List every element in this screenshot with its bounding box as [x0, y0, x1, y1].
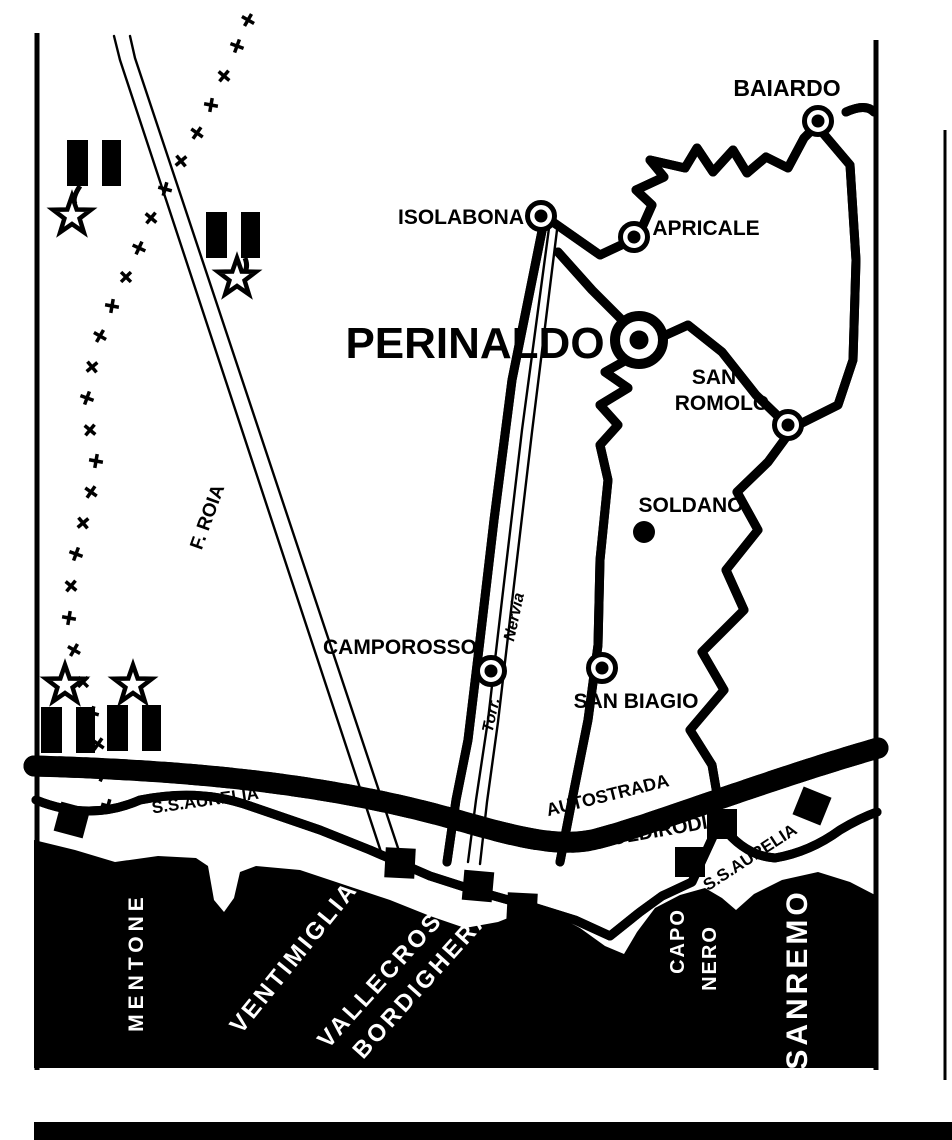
vallecrosia-square-marker	[462, 870, 495, 903]
map-canvas: BAIARDO ISOLABONA APRICALE PERINALDO SAN…	[0, 0, 952, 1140]
sanremo-label: SANREMO	[781, 888, 814, 1069]
coast-square-marker	[675, 847, 705, 877]
flag-icon	[67, 140, 121, 186]
perinaldo-marker	[615, 316, 663, 364]
san-biagio-marker	[589, 655, 616, 682]
mentone-label: MENTONE	[125, 892, 148, 1032]
soldano-marker	[633, 521, 655, 543]
san-romolo-label-line1: SAN	[692, 366, 736, 389]
camporosso-label: CAMPOROSSO	[323, 636, 477, 659]
ventimiglia-square-marker	[384, 847, 416, 879]
capo-nero-label-line1: CAPO	[667, 908, 689, 974]
apricale-marker	[621, 224, 648, 251]
bottom-bar	[34, 1122, 952, 1140]
soldano-label: SOLDANO	[639, 494, 744, 517]
isolabona-label: ISOLABONA	[398, 206, 524, 229]
map-page: BAIARDO ISOLABONA APRICALE PERINALDO SAN…	[0, 0, 952, 1140]
capo-nero-label-line2: NERO	[699, 925, 721, 991]
camporosso-marker	[478, 658, 505, 685]
flag-icon	[107, 705, 161, 751]
baiardo-label: BAIARDO	[733, 75, 840, 101]
coldirodi-square-marker	[707, 809, 737, 839]
perinaldo-label: PERINALDO	[345, 319, 604, 368]
isolabona-marker	[528, 203, 555, 230]
baiardo-marker	[805, 108, 832, 135]
bordighera-square-marker	[506, 892, 538, 924]
san-biagio-label: SAN BIAGIO	[574, 690, 699, 713]
san-romolo-marker	[775, 412, 802, 439]
san-romolo-label-line2: ROMOLO	[675, 392, 770, 415]
flag-icon	[41, 707, 95, 753]
flag-icon	[206, 212, 260, 258]
apricale-label: APRICALE	[652, 217, 759, 240]
